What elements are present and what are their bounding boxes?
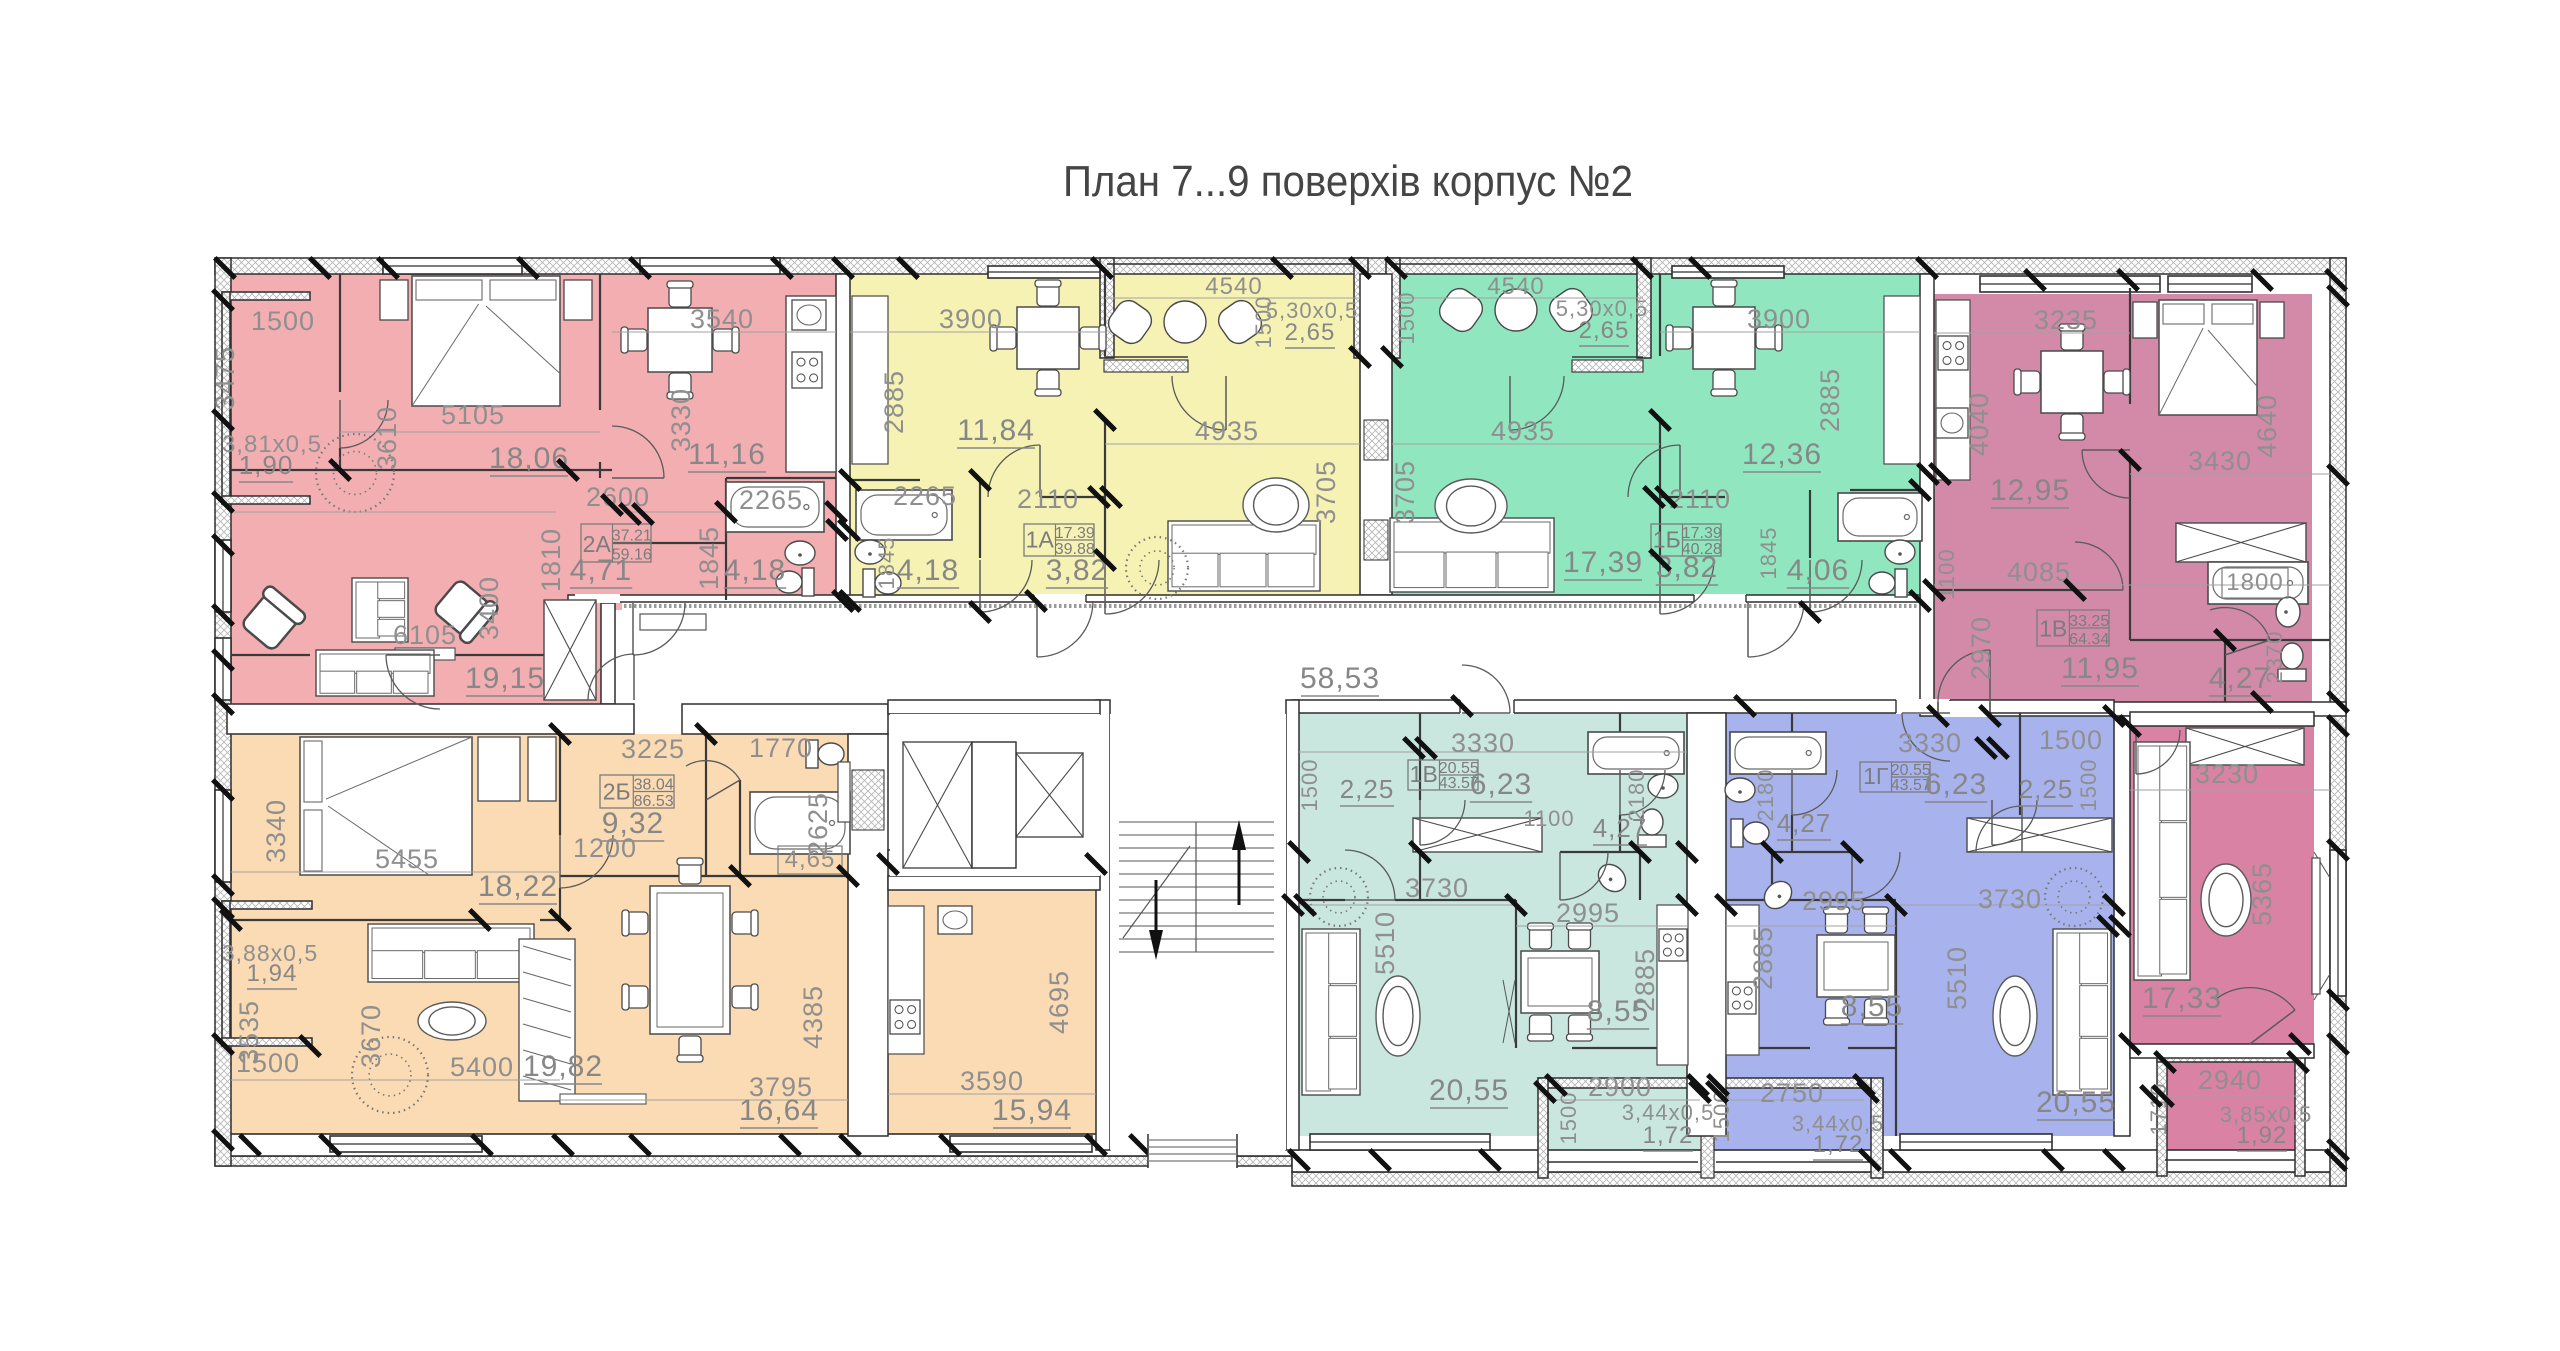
- svg-text:1Г: 1Г: [1863, 763, 1889, 789]
- svg-text:5105: 5105: [441, 400, 505, 430]
- svg-text:3,82: 3,82: [1046, 554, 1108, 587]
- svg-text:1,72: 1,72: [1813, 1131, 1864, 1158]
- svg-text:6,23: 6,23: [1925, 768, 1987, 801]
- svg-text:17.39: 17.39: [1682, 525, 1722, 542]
- svg-text:2900: 2900: [1588, 1072, 1652, 1102]
- svg-text:1А: 1А: [1026, 527, 1055, 553]
- svg-text:2180: 2180: [1624, 769, 1649, 822]
- svg-text:33.25: 33.25: [2069, 613, 2109, 630]
- svg-text:20,55: 20,55: [1429, 1074, 1509, 1107]
- svg-text:План 7...9 поверхів корпус: План 7...9 поверхів корпус №2: [1063, 157, 1633, 206]
- svg-text:3540: 3540: [690, 304, 754, 334]
- svg-text:4695: 4695: [1044, 970, 1074, 1034]
- svg-text:3610: 3610: [372, 406, 402, 470]
- svg-text:4,06: 4,06: [1787, 554, 1849, 587]
- svg-text:4,71: 4,71: [570, 554, 632, 587]
- svg-text:1500: 1500: [2076, 759, 2101, 812]
- svg-text:4,65: 4,65: [785, 846, 836, 873]
- svg-text:38.04: 38.04: [634, 777, 674, 794]
- svg-text:2,25: 2,25: [2019, 774, 2074, 804]
- svg-text:2265: 2265: [739, 485, 803, 515]
- svg-text:3730: 3730: [1405, 873, 1469, 903]
- svg-text:20,55: 20,55: [2036, 1086, 2116, 1119]
- svg-text:17,33: 17,33: [2142, 982, 2222, 1015]
- svg-text:1500: 1500: [2039, 725, 2103, 755]
- svg-text:8,55: 8,55: [1587, 995, 1649, 1028]
- svg-text:4040: 4040: [1964, 392, 1994, 456]
- svg-text:4935: 4935: [1195, 416, 1259, 446]
- svg-text:1В: 1В: [2039, 616, 2067, 642]
- svg-text:1,94: 1,94: [247, 960, 298, 987]
- svg-text:2750: 2750: [1760, 1078, 1824, 1108]
- svg-text:11,84: 11,84: [957, 414, 1035, 447]
- svg-text:2180: 2180: [1753, 769, 1778, 822]
- svg-text:3330: 3330: [1898, 728, 1962, 758]
- svg-text:4540: 4540: [1487, 273, 1544, 300]
- svg-text:15,94: 15,94: [992, 1094, 1072, 1127]
- svg-text:3230: 3230: [2195, 759, 2259, 789]
- svg-text:2Б: 2Б: [603, 778, 631, 804]
- svg-text:3340: 3340: [261, 799, 291, 863]
- svg-text:3400: 3400: [474, 576, 504, 640]
- svg-text:3225: 3225: [621, 734, 685, 764]
- svg-text:1В: 1В: [1410, 761, 1438, 787]
- svg-text:3235: 3235: [2034, 305, 2098, 335]
- svg-text:2940: 2940: [2198, 1065, 2262, 1095]
- svg-text:58,53: 58,53: [1300, 662, 1380, 695]
- svg-text:37.21: 37.21: [612, 528, 652, 545]
- svg-text:5510: 5510: [1942, 946, 1972, 1010]
- svg-text:1845: 1845: [874, 537, 899, 590]
- svg-text:3705: 3705: [1311, 460, 1341, 524]
- svg-text:17.39: 17.39: [1055, 525, 1095, 542]
- svg-text:8,55: 8,55: [1841, 990, 1903, 1023]
- svg-text:17,39: 17,39: [1563, 546, 1643, 579]
- svg-text:4,27: 4,27: [1777, 808, 1832, 838]
- svg-text:2995: 2995: [1556, 898, 1620, 928]
- svg-text:1770: 1770: [749, 733, 813, 763]
- svg-text:6,23: 6,23: [1470, 768, 1532, 801]
- svg-text:4640: 4640: [2252, 394, 2282, 458]
- svg-text:2,65: 2,65: [1285, 319, 1336, 346]
- svg-text:1Б: 1Б: [1653, 527, 1681, 553]
- svg-text:2995: 2995: [1802, 886, 1866, 916]
- svg-text:1,72: 1,72: [1643, 1122, 1694, 1149]
- svg-text:1810: 1810: [536, 528, 566, 592]
- svg-text:4,18: 4,18: [897, 554, 959, 587]
- svg-text:4385: 4385: [798, 985, 828, 1049]
- svg-text:1,90: 1,90: [239, 450, 294, 480]
- svg-text:6105: 6105: [393, 620, 457, 650]
- svg-text:1845: 1845: [1756, 527, 1781, 580]
- svg-text:3475: 3475: [210, 346, 240, 410]
- svg-text:11,95: 11,95: [2061, 652, 2139, 685]
- svg-text:11,16: 11,16: [688, 438, 766, 471]
- svg-text:3900: 3900: [1747, 304, 1811, 334]
- svg-text:4,18: 4,18: [724, 554, 786, 587]
- svg-text:4085: 4085: [2007, 557, 2071, 587]
- svg-text:3590: 3590: [960, 1066, 1024, 1096]
- svg-text:2885: 2885: [1748, 926, 1778, 990]
- svg-text:1845: 1845: [694, 526, 724, 590]
- svg-text:1500: 1500: [1394, 292, 1419, 345]
- svg-text:2110: 2110: [1017, 484, 1079, 514]
- svg-text:1500: 1500: [1297, 759, 1322, 812]
- svg-text:12,95: 12,95: [1990, 474, 2070, 507]
- svg-text:3730: 3730: [1978, 884, 2042, 914]
- svg-text:2,25: 2,25: [1340, 774, 1395, 804]
- svg-text:2110: 2110: [1669, 484, 1731, 514]
- svg-text:12,36: 12,36: [1742, 438, 1822, 471]
- svg-text:2885: 2885: [1815, 368, 1845, 432]
- svg-text:2,65: 2,65: [1579, 317, 1630, 344]
- svg-text:18,06: 18,06: [489, 442, 569, 475]
- svg-text:19,15: 19,15: [465, 662, 545, 695]
- svg-text:2370: 2370: [2262, 631, 2287, 684]
- svg-text:1800: 1800: [2226, 569, 2283, 596]
- svg-text:2970: 2970: [1966, 616, 1996, 680]
- svg-text:4935: 4935: [1491, 416, 1555, 446]
- svg-text:19,82: 19,82: [523, 1050, 603, 1083]
- svg-text:1,92: 1,92: [2237, 1122, 2288, 1149]
- svg-text:1500: 1500: [236, 1048, 300, 1078]
- svg-text:3430: 3430: [2188, 446, 2252, 476]
- svg-text:5400: 5400: [450, 1052, 514, 1082]
- svg-text:18,22: 18,22: [478, 870, 558, 903]
- svg-text:5455: 5455: [375, 844, 439, 874]
- svg-text:3670: 3670: [356, 1004, 386, 1068]
- svg-text:3900: 3900: [939, 304, 1003, 334]
- svg-text:5510: 5510: [1370, 911, 1400, 975]
- svg-text:16,64: 16,64: [739, 1094, 819, 1127]
- svg-text:5365: 5365: [2247, 862, 2277, 926]
- svg-text:2265: 2265: [893, 481, 957, 511]
- svg-text:64.34: 64.34: [2069, 631, 2109, 648]
- svg-text:1500: 1500: [1556, 1092, 1581, 1145]
- svg-text:3705: 3705: [1390, 460, 1420, 524]
- svg-text:1200: 1200: [573, 833, 637, 863]
- svg-text:1500: 1500: [251, 306, 315, 336]
- svg-text:3330: 3330: [1451, 728, 1515, 758]
- svg-text:1100: 1100: [1523, 806, 1574, 831]
- svg-text:2885: 2885: [879, 370, 909, 434]
